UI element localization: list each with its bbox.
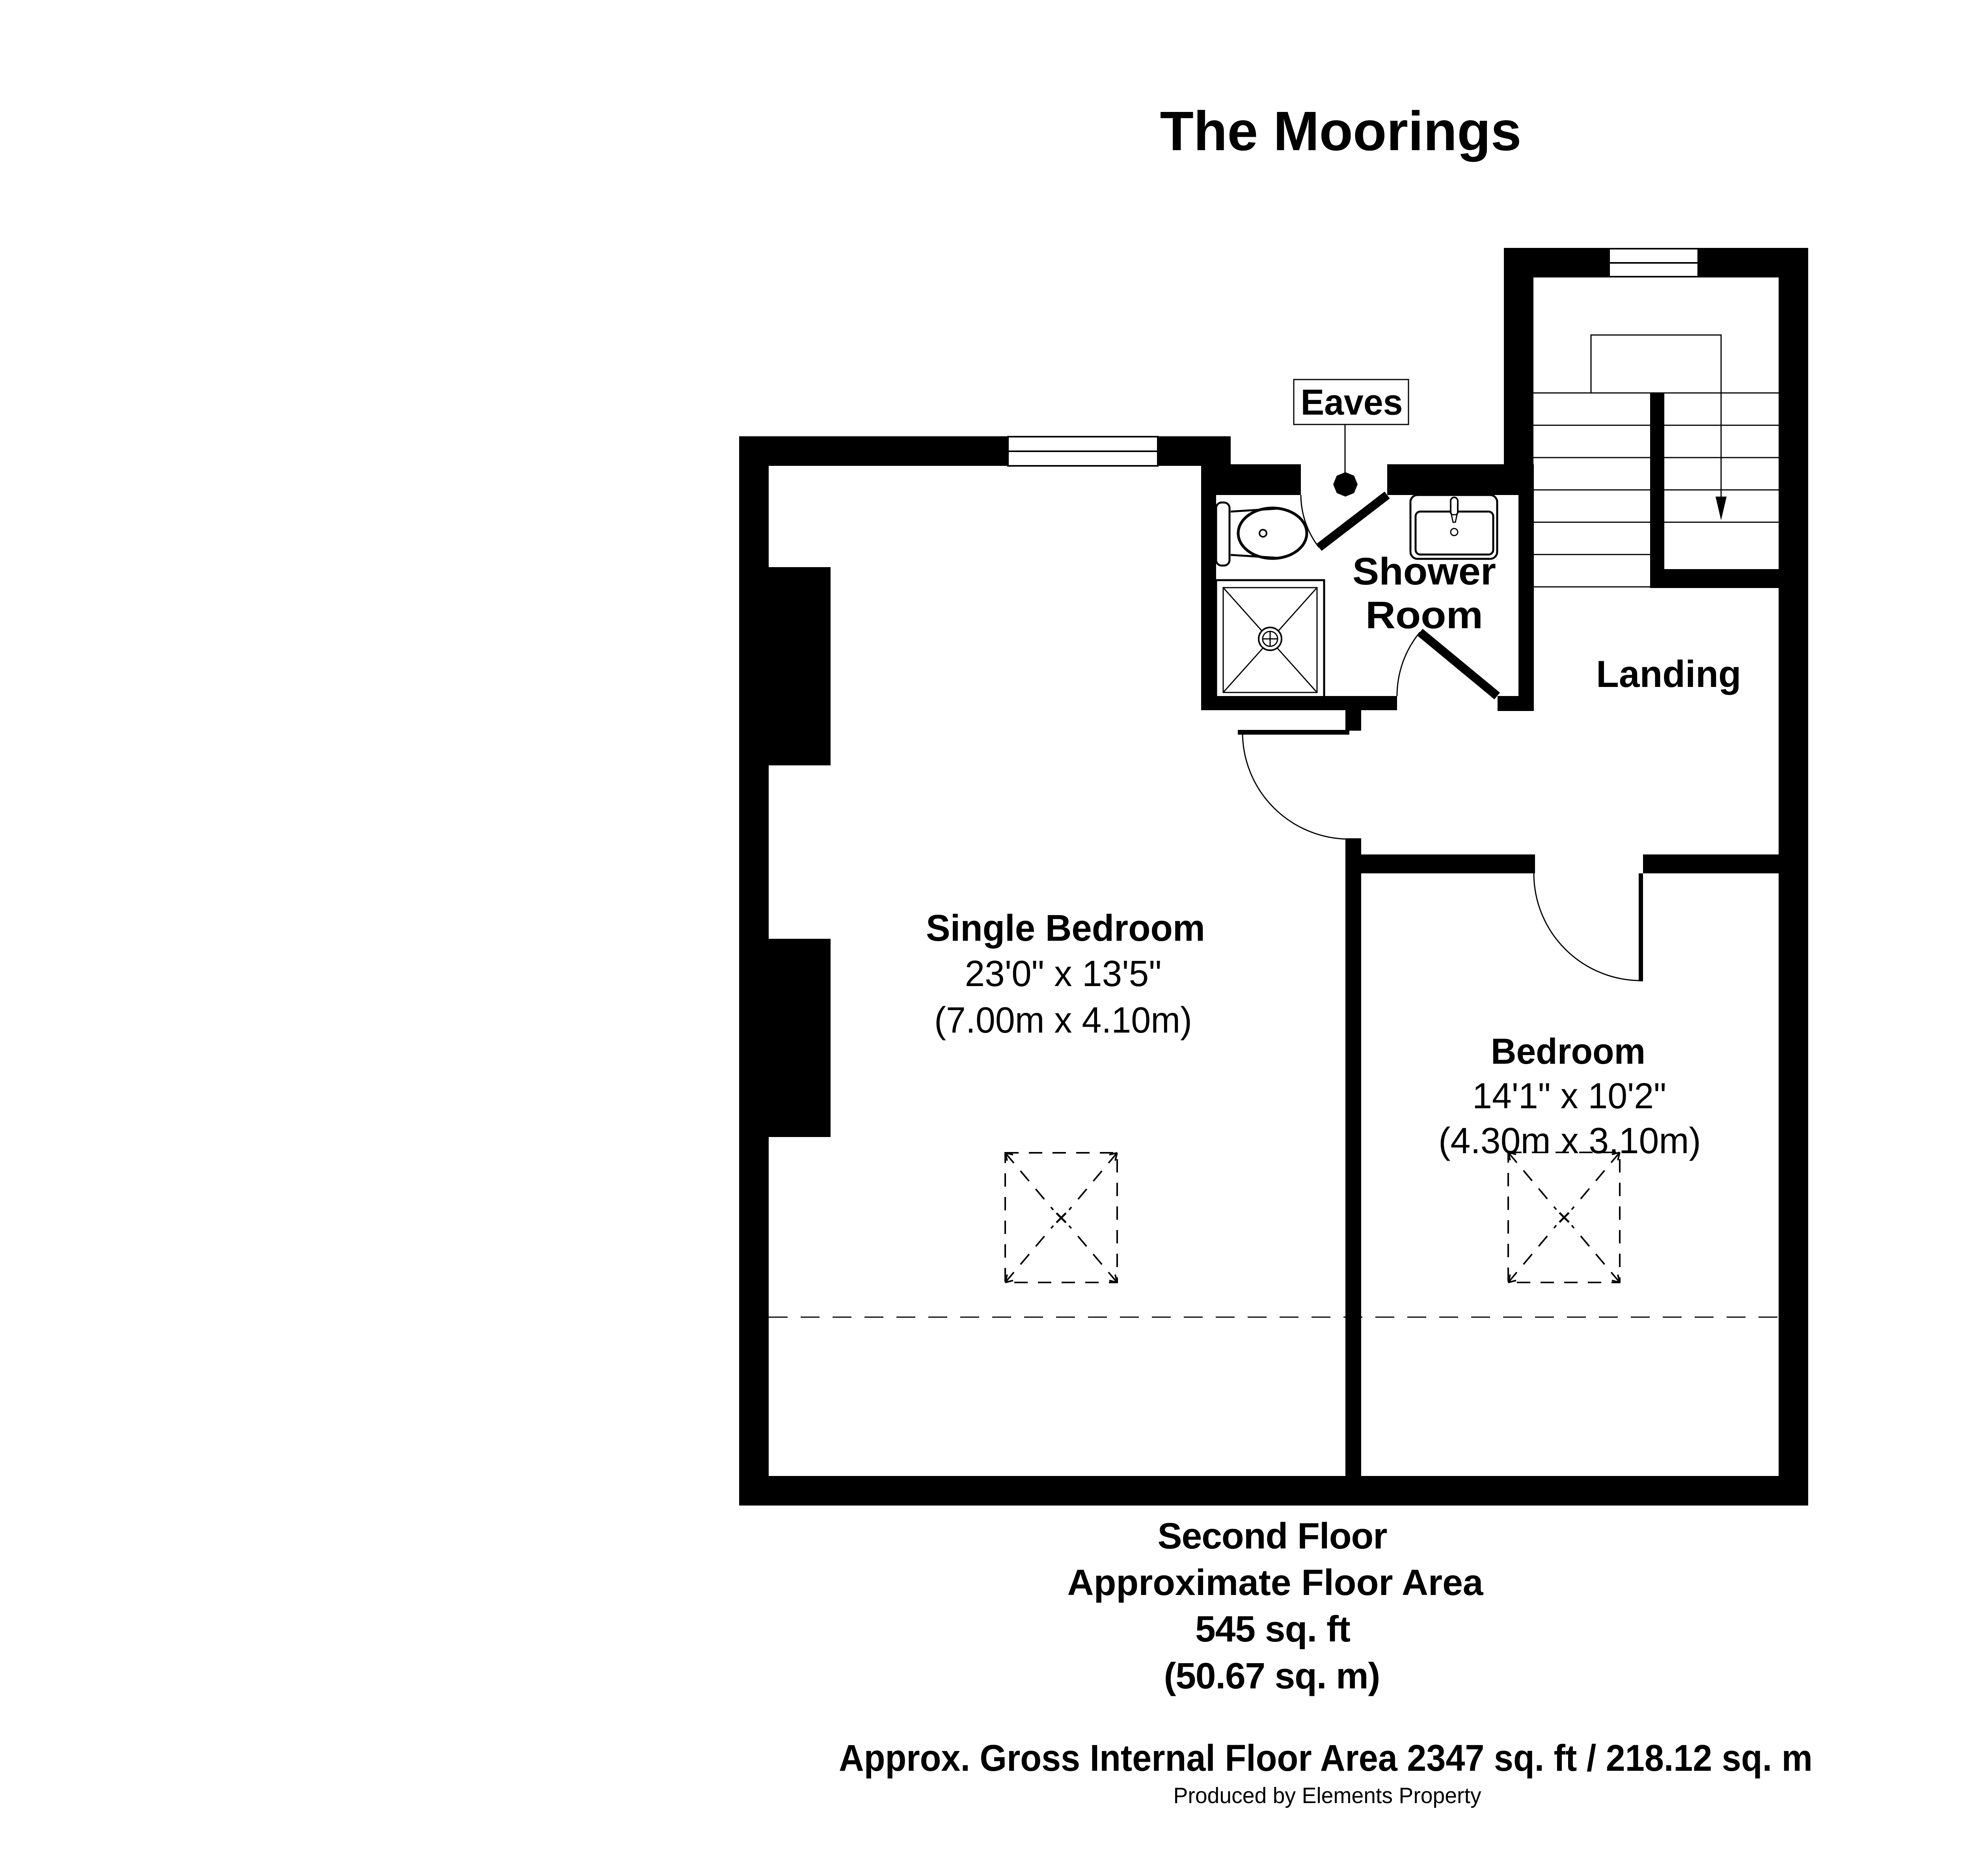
svg-text:Produced by Elements Property: Produced by Elements Property <box>1174 1783 1481 1808</box>
svg-text:(50.67 sq. m): (50.67 sq. m) <box>1164 1655 1380 1696</box>
svg-text:23'0" x 13'5": 23'0" x 13'5" <box>965 953 1162 994</box>
svg-text:Room: Room <box>1366 594 1483 636</box>
svg-text:Bedroom: Bedroom <box>1491 1031 1645 1072</box>
svg-text:14'1" x 10'2": 14'1" x 10'2" <box>1472 1076 1666 1116</box>
svg-text:Second Floor: Second Floor <box>1158 1515 1388 1556</box>
svg-text:(7.00m x 4.10m): (7.00m x 4.10m) <box>934 999 1192 1040</box>
svg-text:Single Bedroom: Single Bedroom <box>926 907 1205 949</box>
svg-text:The Moorings: The Moorings <box>1160 100 1522 162</box>
svg-text:Approx. Gross Internal Floor A: Approx. Gross Internal Floor Area 2347 s… <box>839 1737 1813 1779</box>
svg-text:Eaves: Eaves <box>1301 382 1403 422</box>
svg-text:Approximate Floor Area: Approximate Floor Area <box>1067 1562 1484 1603</box>
svg-text:Landing: Landing <box>1596 653 1741 695</box>
svg-text:(4.30m x 3.10m): (4.30m x 3.10m) <box>1438 1120 1701 1161</box>
svg-text:545 sq. ft: 545 sq. ft <box>1195 1608 1351 1649</box>
svg-text:Shower: Shower <box>1353 550 1496 593</box>
